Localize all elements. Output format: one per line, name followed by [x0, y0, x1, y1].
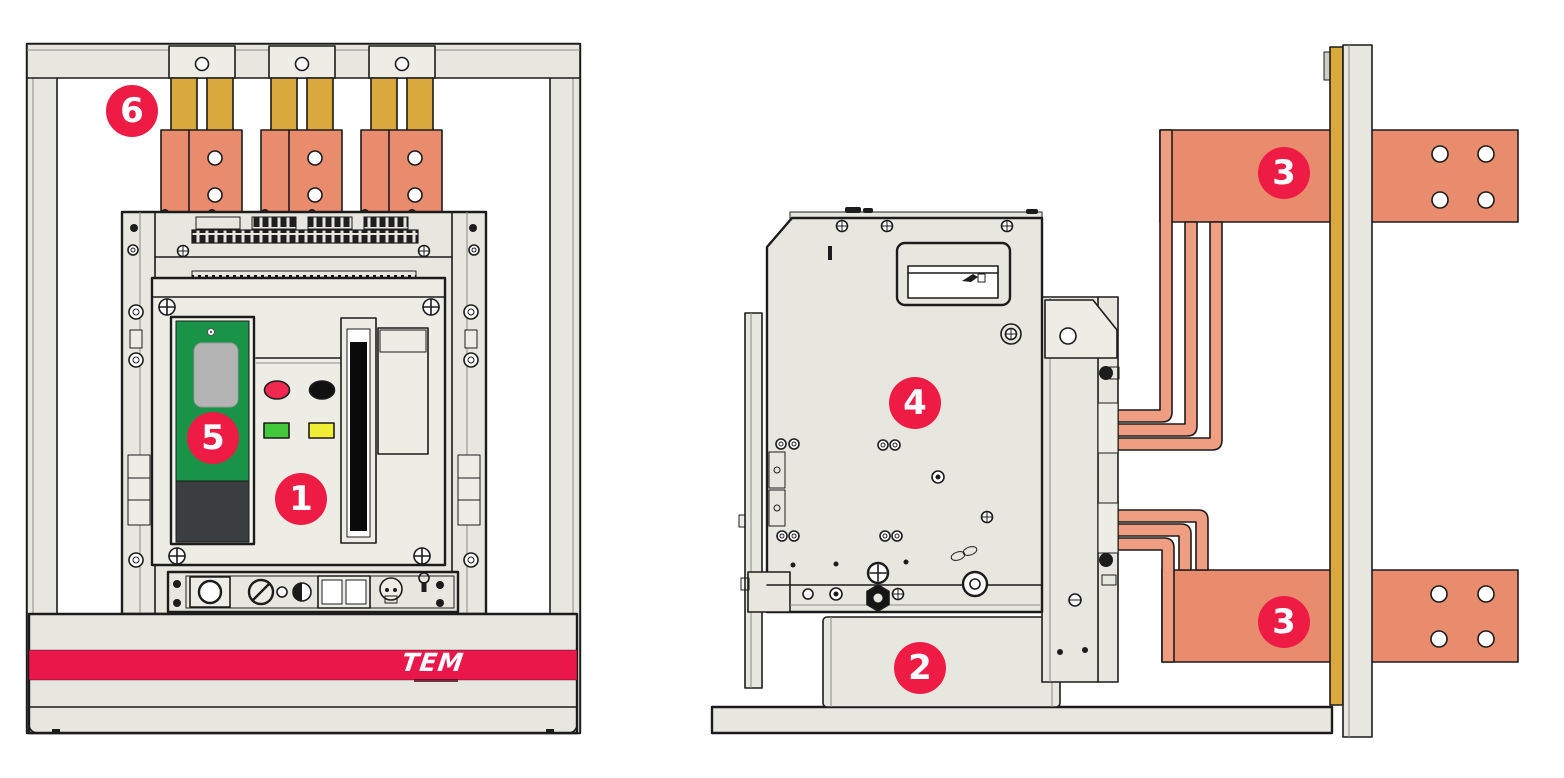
- floor-plate: [712, 707, 1332, 733]
- side-door-panel: [739, 313, 762, 688]
- breaker-cabinet: [122, 212, 486, 614]
- callout-3-top: 3: [1258, 147, 1310, 199]
- side-view: [712, 45, 1518, 737]
- front-view: [27, 44, 580, 733]
- callout-4-label: 4: [903, 383, 927, 423]
- callout-5: 5: [187, 412, 239, 464]
- diagram-artwork: [0, 0, 1564, 778]
- callout-2: 2: [894, 642, 946, 694]
- support-post: [1324, 45, 1372, 737]
- green-indicator: [264, 423, 289, 438]
- callout-3-bottom: 3: [1258, 596, 1310, 648]
- callout-4: 4: [889, 377, 941, 429]
- brand-stripe: [29, 650, 577, 680]
- brand-tagline: [414, 679, 458, 682]
- callout-2-label: 2: [908, 648, 932, 688]
- callout-5-label: 5: [201, 418, 225, 458]
- diagram-canvas: 1 2 3 3 4 5 6 TEM: [0, 0, 1564, 778]
- cradle: [1042, 297, 1119, 682]
- callout-1: 1: [275, 473, 327, 525]
- bottom-panel: [29, 614, 577, 733]
- callout-1-label: 1: [289, 479, 313, 519]
- on-button: [310, 381, 335, 399]
- charging-handle-slot: [341, 318, 376, 543]
- off-button: [265, 381, 290, 399]
- callout-3-bottom-label: 3: [1272, 602, 1296, 642]
- callout-3-top-label: 3: [1272, 153, 1296, 193]
- yellow-indicator: [309, 423, 334, 438]
- callout-6: 6: [106, 85, 158, 137]
- callout-6-label: 6: [120, 91, 144, 131]
- control-rail: [168, 572, 458, 612]
- brand-logo: TEM: [400, 648, 466, 674]
